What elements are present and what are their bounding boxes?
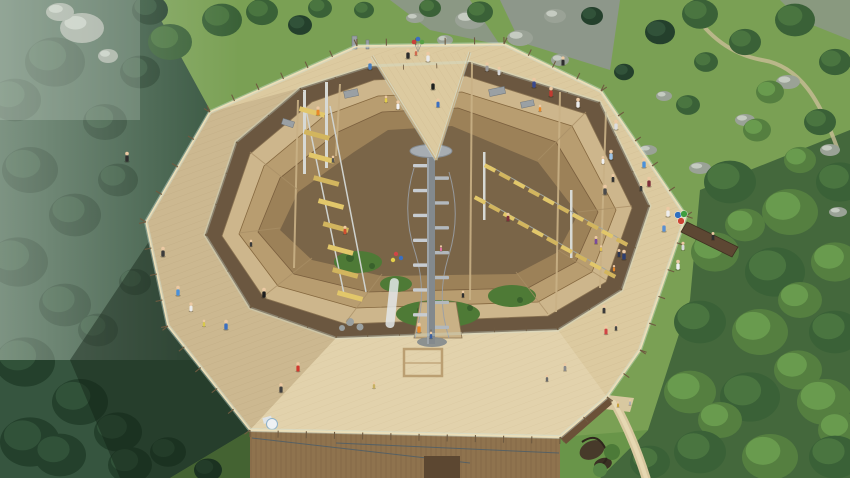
architectural-rendering [0,0,850,478]
bush [604,444,620,460]
tree-mid [819,49,850,75]
stair-step [413,263,429,266]
balloon [416,37,421,42]
wall-doorway [424,456,460,478]
tree-light [725,209,765,242]
tree-mid [354,2,374,18]
tree-dark [645,20,675,45]
treetop-tower-scene [0,0,850,478]
rock [406,13,424,23]
tree-mid [674,431,726,474]
tree-light [778,282,822,318]
tree-mid [674,301,726,344]
tree-light [756,81,784,104]
stair-step [413,189,429,192]
mist-overlay-corner [0,0,140,120]
tree-mid [682,0,718,29]
parasol-panel [678,218,685,225]
tree-mid [676,95,700,115]
tree-dark [288,15,312,35]
parasol-panel [675,212,682,219]
stair-step [413,239,429,242]
stair-step [433,176,449,179]
tree-dark [614,64,634,80]
tree-dark [34,434,86,477]
stair-step [413,164,429,167]
stair-step [433,226,449,229]
tree-light [732,309,788,355]
stair-step [433,326,449,329]
stair-step [413,313,429,316]
balloon [420,40,425,45]
tree-mid [729,29,761,55]
stair-step [433,201,449,204]
stair-step [433,276,449,279]
bush [593,463,607,477]
rock [507,30,533,46]
tree-light [743,119,771,142]
stair-step [433,301,449,304]
tree-light [742,434,798,478]
parasol-panel [681,211,688,218]
rock [829,207,847,217]
rock [820,144,840,156]
tree-mid [467,1,493,22]
rock [656,91,672,101]
balloon [412,40,417,45]
tree-light [762,189,818,235]
tree-mid [704,161,756,204]
tree-mid [694,52,718,72]
rock [544,9,566,23]
stair-step [413,214,429,217]
tree-dark [581,7,603,25]
stair-step [413,288,429,291]
tree-light [784,147,816,173]
tree-mid [775,4,815,37]
tree-mid [804,109,836,135]
tree-mid [246,0,278,25]
